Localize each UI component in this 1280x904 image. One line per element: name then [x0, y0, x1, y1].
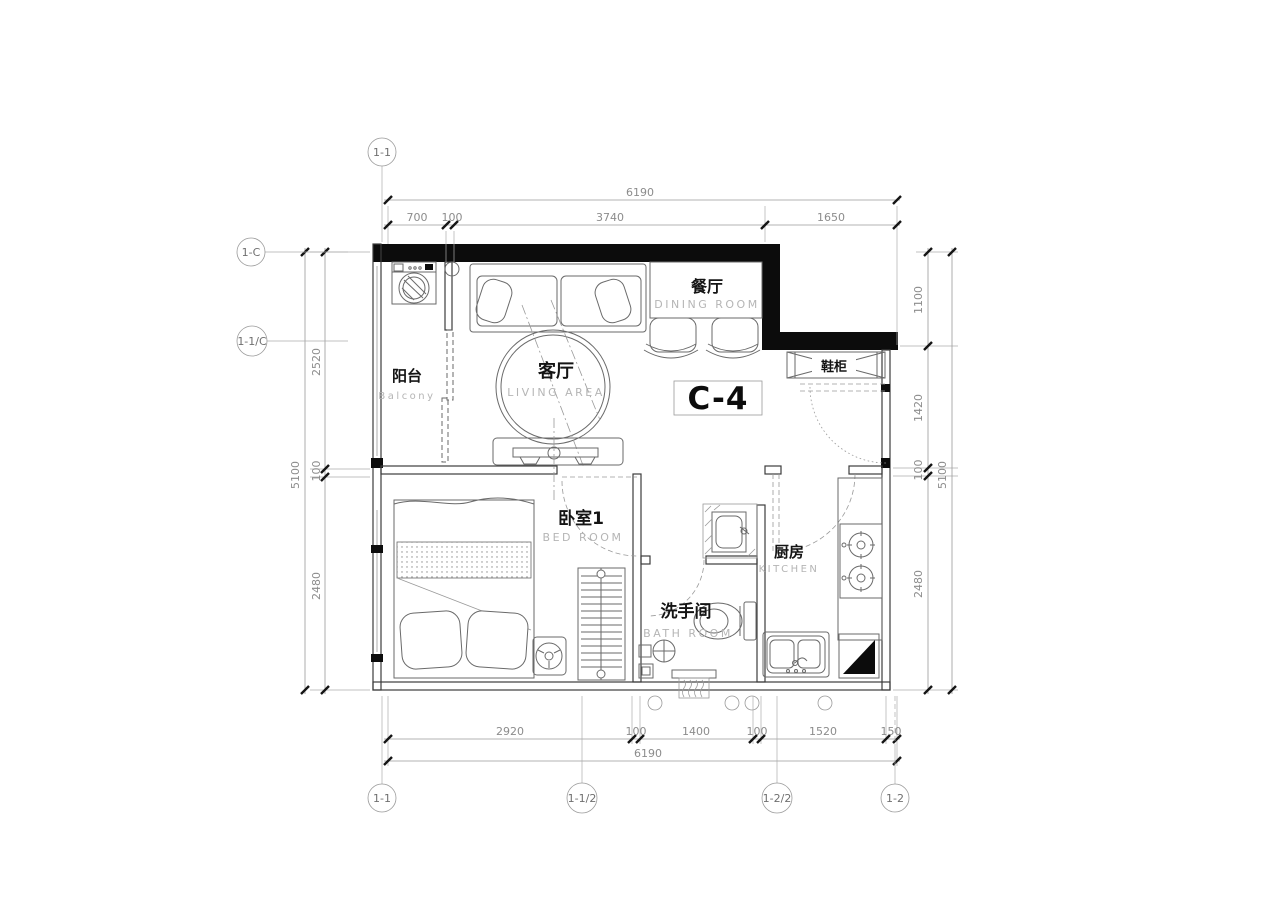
dim-bottom-seg-2: 1400: [682, 725, 710, 738]
kitchen-sink: [763, 632, 829, 677]
dim-right-overall: 5100: [936, 461, 949, 489]
label-balcony-en: Balcony: [378, 391, 435, 402]
bed: [394, 498, 534, 678]
grid-left-upper: 1-C: [242, 246, 261, 259]
dim-left-seg-2: 2480: [310, 572, 323, 600]
unit-label-box: C-4: [674, 381, 762, 417]
dim-left-seg-1: 100: [310, 461, 323, 482]
living-rug: [496, 300, 610, 468]
grid-bottom-3: 1-2: [886, 792, 904, 805]
dim-right-seg-0: 1100: [912, 286, 925, 314]
label-dining-en: DINING ROOM: [654, 298, 759, 311]
label-bedroom-cn: 卧室1: [558, 508, 604, 529]
stove: [840, 524, 882, 598]
dim-bottom-seg-0: 2920: [496, 725, 524, 738]
floor-plan: 阳台 Balcony 客厅 LIVING AREA 餐厅 DINING ROOM…: [0, 0, 1280, 904]
tv-cabinet: [493, 418, 623, 502]
dim-right-seg-2: 100: [912, 460, 925, 481]
shower-head: [639, 640, 675, 678]
dim-top-overall: 6190: [626, 186, 654, 199]
dining-chair-left: [644, 318, 698, 358]
label-bedroom-en: BED ROOM: [543, 531, 624, 544]
dim-top-seg-1: 100: [442, 211, 463, 224]
grid-markers: 1-1 1-C 1-1/C 1-1 1-1/2 1-2/2 1-2: [237, 138, 909, 813]
dim-top-seg-2: 3740: [596, 211, 624, 224]
label-bathroom-en: BATH ROOM: [643, 627, 733, 640]
dim-top-seg-3: 1650: [817, 211, 845, 224]
dim-bottom-overall: 6190: [634, 747, 662, 760]
dim-bottom-seg-1: 100: [626, 725, 647, 738]
washing-machine: [392, 262, 436, 304]
label-kitchen-cn: 厨房: [774, 543, 804, 561]
dim-right-seg-3: 2480: [912, 570, 925, 598]
dim-bottom-seg-4: 1520: [809, 725, 837, 738]
label-dining-cn: 餐厅: [690, 277, 723, 296]
label-shoe-cabinet: 鞋柜: [821, 359, 847, 375]
dim-left-overall: 5100: [289, 461, 302, 489]
entry-door: [800, 384, 886, 463]
grid-top-left: 1-1: [373, 146, 391, 159]
balcony-sliding-door: [442, 330, 453, 462]
sofa: [470, 264, 646, 332]
label-kitchen-en: KITCHEN: [759, 564, 820, 575]
refrigerator-space: [839, 634, 879, 678]
dimension-right: 1100 1420 100 2480 5100: [893, 248, 958, 694]
unit-label: C-4: [688, 381, 749, 417]
floor-drain-circles: [648, 696, 832, 710]
dim-left-seg-0: 2520: [310, 348, 323, 376]
grid-bottom-2: 1-2/2: [763, 792, 792, 805]
washbasin: [703, 504, 757, 558]
wardrobe-rack: [578, 568, 625, 680]
bath-window: [672, 670, 716, 698]
label-living-en: LIVING AREA: [507, 386, 605, 399]
label-balcony-cn: 阳台: [392, 367, 422, 385]
bedside-fan-stool: [533, 637, 566, 675]
dining-chair-right: [706, 318, 760, 358]
dim-bottom-seg-3: 100: [747, 725, 768, 738]
dimension-top: 6190 700 100 3740 1650: [384, 186, 901, 345]
dim-right-seg-1: 1420: [912, 394, 925, 422]
dimension-bottom: 2920 100 1400 100 1520 150 6190: [384, 696, 902, 766]
dimension-left: 5100 2520 100 2480: [289, 248, 370, 694]
grid-bottom-1: 1-1/2: [568, 792, 597, 805]
dim-top-seg-0: 700: [407, 211, 428, 224]
dim-bottom-seg-5: 150: [881, 725, 902, 738]
grid-bottom-0: 1-1: [373, 792, 391, 805]
label-living-cn: 客厅: [538, 360, 574, 382]
label-bathroom-cn: 洗手间: [661, 601, 712, 622]
grid-left-lower: 1-1/C: [237, 335, 267, 348]
